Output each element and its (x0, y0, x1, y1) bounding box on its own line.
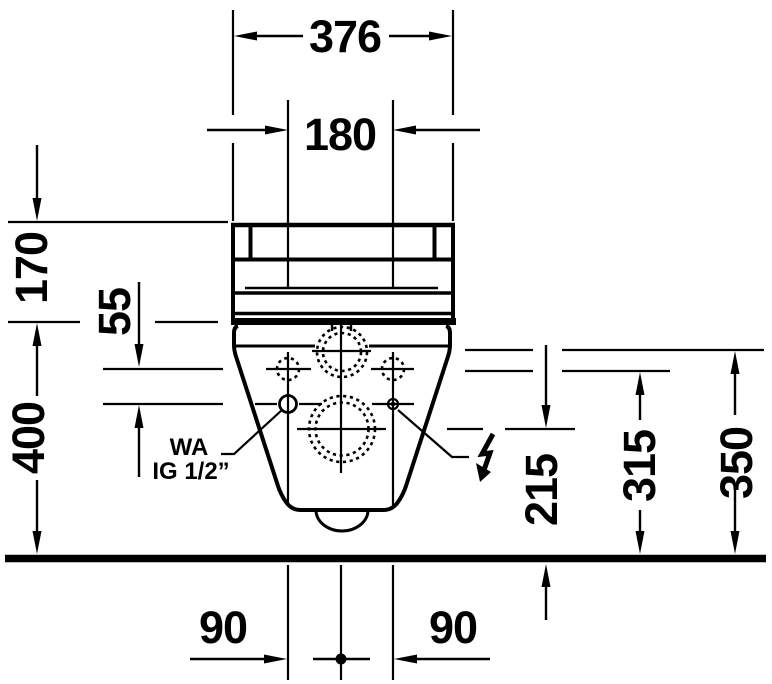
electrical-connection-dot (391, 402, 396, 407)
fixing-spacing-label: 180 (304, 109, 376, 160)
body-height-label: 400 (3, 402, 54, 474)
water-thread-label: IG 1/2” (152, 458, 229, 485)
fixing-height-label: 315 (614, 430, 665, 502)
toilet-body (231, 223, 456, 531)
toilet-dimension-drawing: 376 180 170 400 55 215 315 350 90 90 WA … (0, 0, 772, 684)
drain-arc (316, 510, 368, 531)
bottom-center-dot (336, 654, 347, 665)
arrow-400-bottom (33, 531, 42, 554)
arrow-350-top (731, 351, 740, 374)
arrow-180-right (393, 126, 416, 135)
leader-water-connection (221, 410, 282, 454)
arrow-55-top (135, 344, 144, 367)
arrow-376-right (429, 32, 452, 41)
overall-width-label: 376 (309, 11, 381, 62)
tank-height-label: 170 (6, 232, 57, 304)
technical-drawing-canvas: 376 180 170 400 55 215 315 350 90 90 WA … (0, 0, 772, 684)
leader-electrical-connection (398, 410, 469, 457)
arrow-315-top (636, 372, 645, 395)
arrow-90-right (394, 655, 417, 664)
supply-height-label: 350 (711, 427, 762, 499)
outlet-height-label: 215 (516, 454, 567, 526)
arrow-90-left (264, 655, 287, 664)
arrow-350-bottom (731, 531, 740, 554)
arrow-170-top (33, 198, 42, 221)
water-abbr-label: WA (170, 434, 209, 461)
arrow-400-top (33, 323, 42, 346)
arrow-376-left (234, 32, 257, 41)
lid-inner-edges (251, 225, 435, 259)
connection-offset-label: 55 (89, 288, 140, 336)
arrow-55-bottom (135, 405, 144, 428)
bottom-right-offset-label: 90 (429, 602, 477, 653)
arrow-315-bottom (636, 531, 645, 554)
arrow-180-left (265, 126, 288, 135)
arrow-215-bottom (542, 564, 551, 587)
bottom-left-offset-label: 90 (199, 602, 247, 653)
arrow-215-top (542, 405, 551, 428)
lightning-bolt-icon (476, 434, 493, 482)
